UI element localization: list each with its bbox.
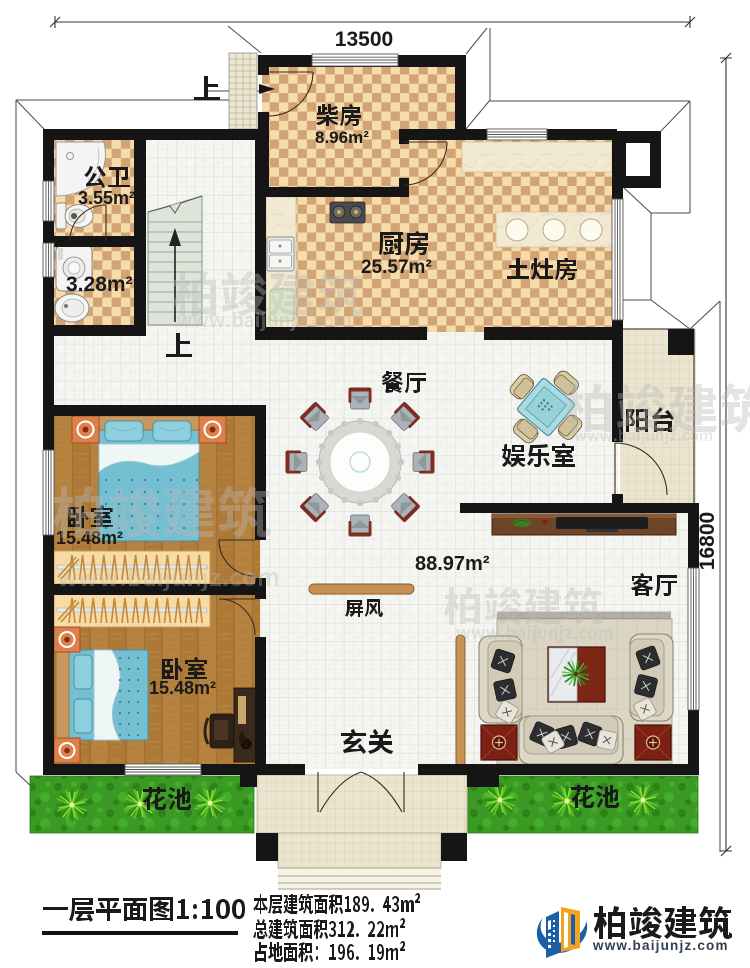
svg-text:3.55m²: 3.55m² xyxy=(78,188,135,208)
svg-text:www.baijunjz.com: www.baijunjz.com xyxy=(592,938,729,953)
svg-text:88.97m²: 88.97m² xyxy=(415,553,490,575)
svg-text:25.57m²: 25.57m² xyxy=(361,257,432,278)
svg-text:3.28m²: 3.28m² xyxy=(66,273,133,296)
svg-text:16800: 16800 xyxy=(696,512,719,570)
svg-text:13500: 13500 xyxy=(335,28,393,51)
svg-text:8.96m²: 8.96m² xyxy=(315,128,369,147)
svg-text:15.48m²: 15.48m² xyxy=(149,678,216,698)
